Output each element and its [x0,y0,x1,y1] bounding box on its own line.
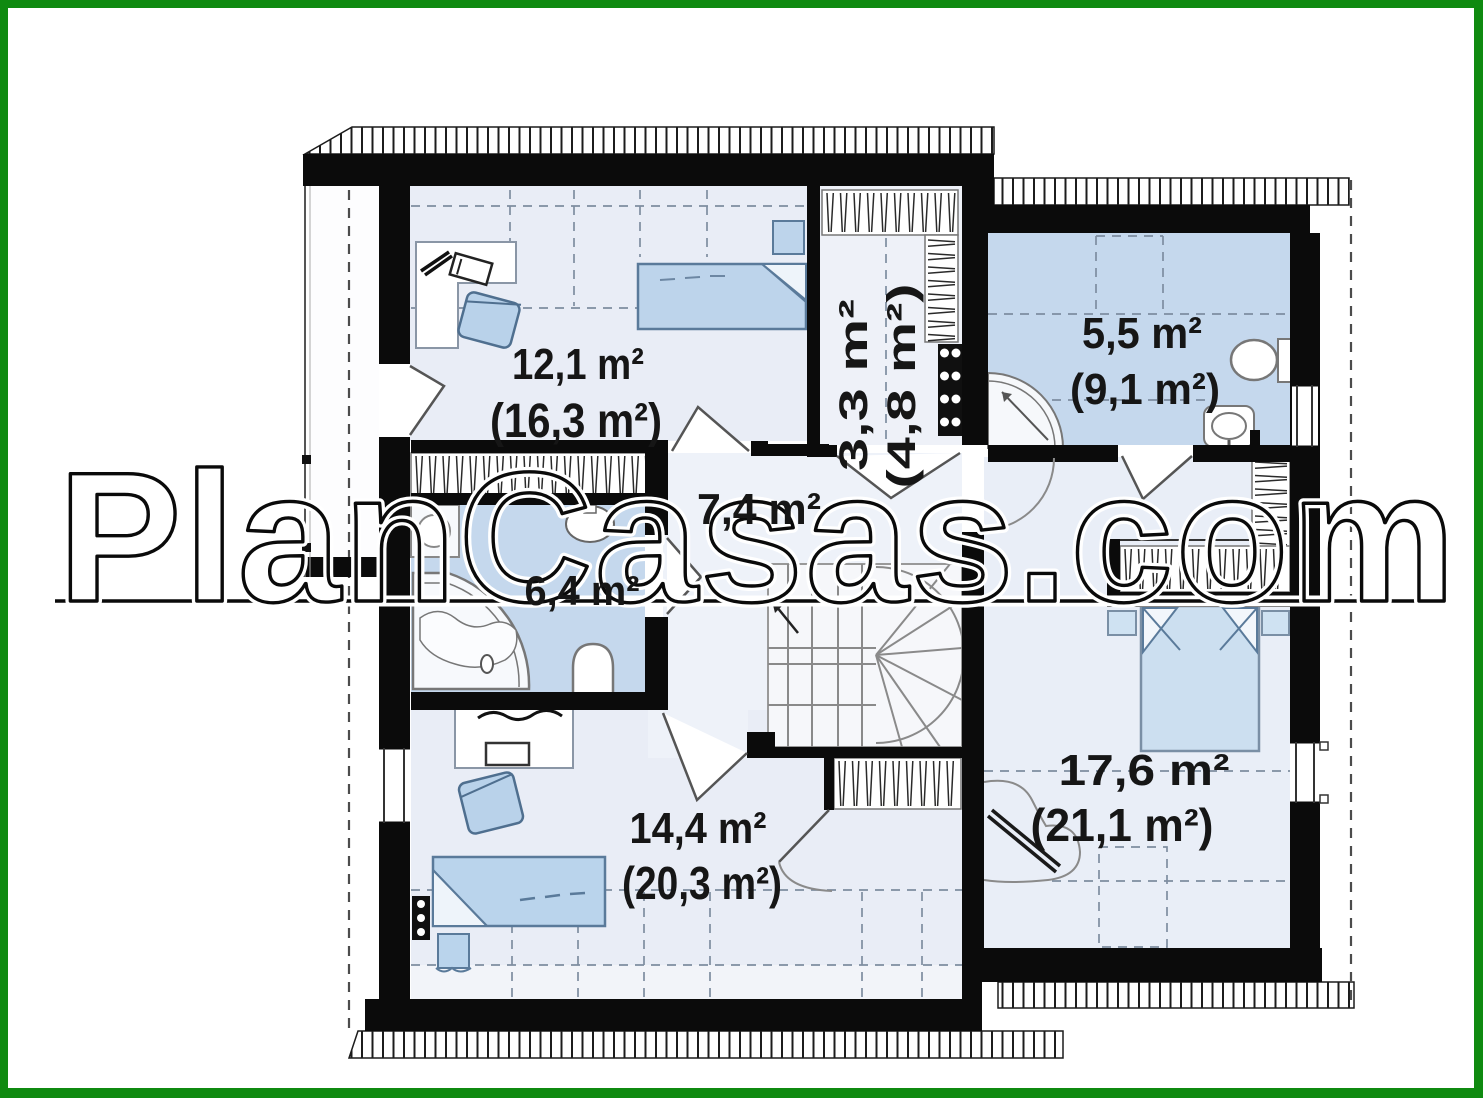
svg-text:(21,1 m²): (21,1 m²) [1031,799,1214,851]
svg-text:(16,3 m²): (16,3 m²) [490,395,662,448]
svg-text:(20,3 m²): (20,3 m²) [622,857,782,909]
svg-text:PlanCasas.com: PlanCasas.com [58,435,1458,641]
svg-text:7,4 m²: 7,4 m² [697,485,821,534]
svg-text:(4,8 m²): (4,8 m²) [880,284,924,489]
svg-text:5,5 m²: 5,5 m² [1082,309,1202,358]
svg-text:(9,1 m²): (9,1 m²) [1070,365,1220,414]
svg-text:3,3 m²: 3,3 m² [832,299,876,471]
svg-text:6,4 m²: 6,4 m² [525,567,640,614]
svg-text:17,6 m²: 17,6 m² [1059,746,1230,795]
svg-text:14,4 m²: 14,4 m² [630,804,767,853]
svg-text:12,1 m²: 12,1 m² [512,340,644,389]
